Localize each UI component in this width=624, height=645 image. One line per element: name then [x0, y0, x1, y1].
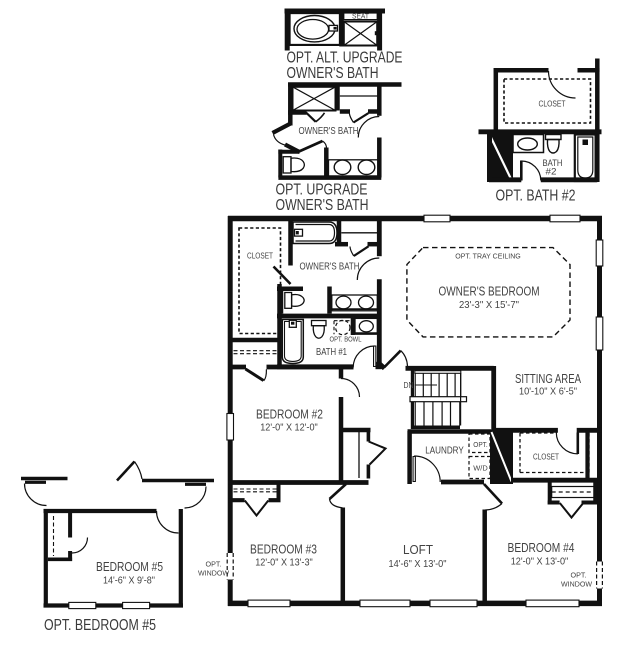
svg-text:12'-0" X 13'-3": 12'-0" X 13'-3" — [255, 557, 313, 569]
svg-text:OPT.: OPT. — [206, 560, 222, 569]
svg-text:OPT. TRAY CEILING: OPT. TRAY CEILING — [455, 251, 521, 260]
svg-text:#2: #2 — [546, 167, 557, 178]
svg-text:CLOSET: CLOSET — [247, 251, 273, 261]
svg-text:BATH #1: BATH #1 — [316, 346, 347, 358]
svg-text:14'-6" X 9'-8": 14'-6" X 9'-8" — [103, 575, 155, 587]
svg-text:10'-10" X 6'-5": 10'-10" X 6'-5" — [519, 386, 577, 398]
svg-text:SEAT: SEAT — [352, 14, 370, 21]
svg-text:OWNER'S BATH: OWNER'S BATH — [276, 197, 369, 214]
svg-text:OPT.: OPT. — [473, 440, 488, 449]
svg-text:OPT. UPGRADE: OPT. UPGRADE — [276, 182, 368, 199]
svg-text:BEDROOM #3: BEDROOM #3 — [250, 542, 317, 557]
svg-text:WINDOW: WINDOW — [561, 580, 593, 589]
svg-text:BEDROOM #5: BEDROOM #5 — [96, 560, 163, 574]
svg-text:OWNER'S BATH: OWNER'S BATH — [287, 65, 379, 82]
svg-text:12'-0" X 13'-0": 12'-0" X 13'-0" — [511, 556, 569, 568]
svg-text:OPT.: OPT. — [571, 571, 587, 580]
svg-text:OPT. BEDROOM #5: OPT. BEDROOM #5 — [44, 617, 156, 634]
svg-text:CLOSET: CLOSET — [533, 452, 559, 462]
svg-text:SITTING AREA: SITTING AREA — [515, 372, 581, 386]
svg-text:W/D: W/D — [473, 464, 488, 473]
svg-text:14'-6" X 13'-0": 14'-6" X 13'-0" — [389, 558, 447, 570]
svg-text:CLOSET: CLOSET — [539, 99, 566, 109]
svg-text:LOFT: LOFT — [403, 542, 433, 557]
svg-text:OWNER'S BATH: OWNER'S BATH — [299, 125, 359, 137]
svg-text:23'-3" X 15'-7": 23'-3" X 15'-7" — [459, 299, 519, 311]
svg-text:LAUNDRY: LAUNDRY — [425, 445, 464, 457]
svg-text:OPT. ALT. UPGRADE: OPT. ALT. UPGRADE — [287, 50, 403, 67]
svg-text:WINDOW: WINDOW — [198, 569, 230, 578]
svg-text:BEDROOM #4: BEDROOM #4 — [508, 540, 575, 555]
svg-text:OWNER'S BEDROOM: OWNER'S BEDROOM — [439, 284, 540, 299]
svg-text:OWNER'S BATH: OWNER'S BATH — [300, 261, 360, 273]
svg-text:OPT. BATH #2: OPT. BATH #2 — [496, 188, 576, 205]
svg-text:DN: DN — [404, 381, 414, 390]
svg-text:12'-0" X 12'-0": 12'-0" X 12'-0" — [260, 422, 318, 434]
svg-text:OPT. BOWL: OPT. BOWL — [330, 335, 362, 344]
svg-text:BEDROOM #2: BEDROOM #2 — [256, 407, 323, 422]
